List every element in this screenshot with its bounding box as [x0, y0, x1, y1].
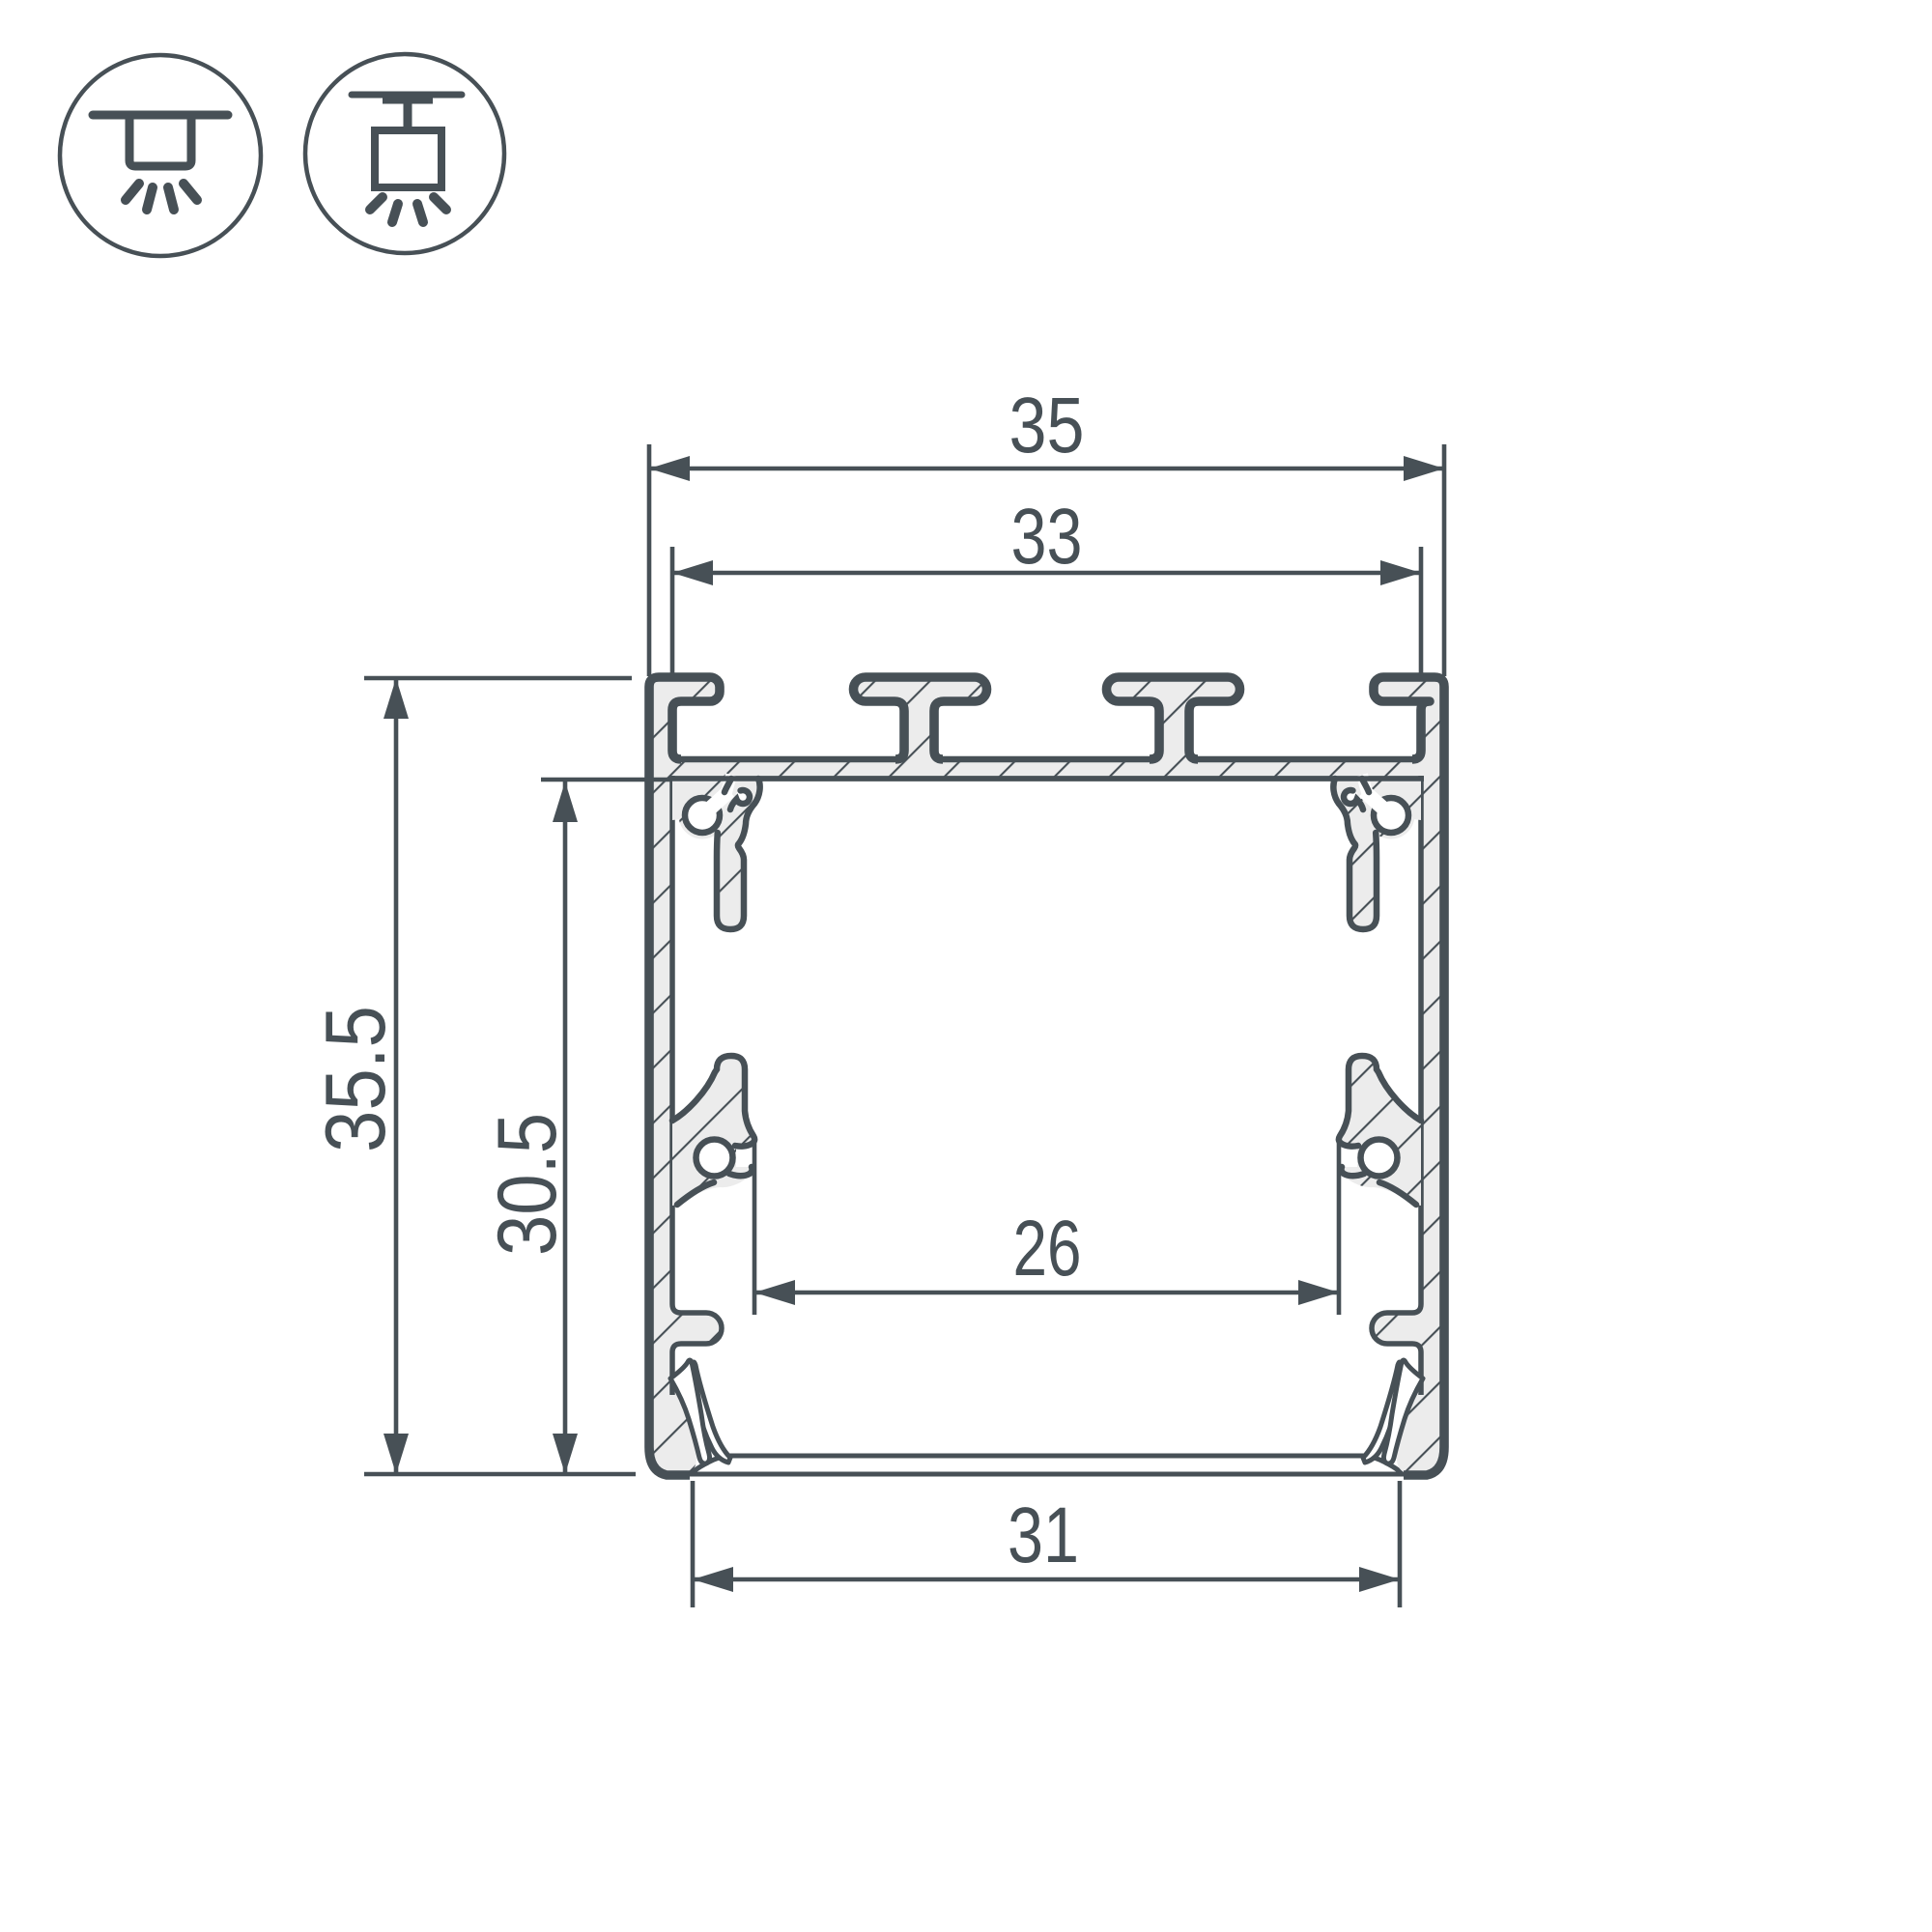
svg-text:33: 33 — [1011, 493, 1083, 581]
svg-text:26: 26 — [1013, 1205, 1082, 1293]
svg-text:31: 31 — [1008, 1492, 1079, 1579]
svg-text:35.5: 35.5 — [307, 1006, 403, 1152]
svg-text:35: 35 — [1009, 382, 1085, 469]
svg-text:30.5: 30.5 — [481, 1113, 574, 1256]
